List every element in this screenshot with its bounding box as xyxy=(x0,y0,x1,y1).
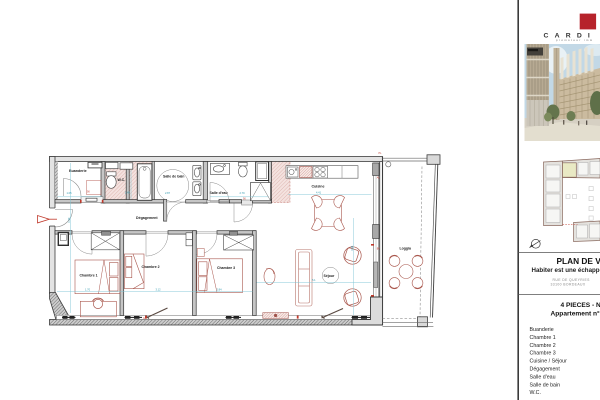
svg-text:1.30: 1.30 xyxy=(67,217,71,223)
svg-text:W.C.: W.C. xyxy=(530,390,541,396)
svg-text:Salle d'eau: Salle d'eau xyxy=(530,374,556,380)
svg-text:2.87: 2.87 xyxy=(165,191,171,195)
svg-text:PLAN DE VENTE: PLAN DE VENTE xyxy=(557,256,600,266)
svg-text:Dégagement: Dégagement xyxy=(136,216,158,220)
svg-text:W.C.: W.C. xyxy=(118,178,126,182)
svg-text:Cuisine: Cuisine xyxy=(312,185,325,189)
svg-text:RUE DE QUEYRIES: RUE DE QUEYRIES xyxy=(553,278,591,282)
svg-text:2.79: 2.79 xyxy=(240,191,246,195)
svg-text:Dégagement: Dégagement xyxy=(530,367,561,373)
svg-text:33100 BORDEAUX: 33100 BORDEAUX xyxy=(551,283,586,287)
svg-text:Chambre 1: Chambre 1 xyxy=(80,274,98,278)
svg-text:promoteur imm: promoteur imm xyxy=(556,38,594,42)
svg-text:2.84: 2.84 xyxy=(217,288,223,292)
svg-text:Buanderie: Buanderie xyxy=(530,327,554,333)
svg-text:4.41: 4.41 xyxy=(316,191,322,195)
svg-text:Séjour: Séjour xyxy=(324,274,336,278)
svg-text:Chambre 1: Chambre 1 xyxy=(530,335,556,341)
svg-text:Loggia: Loggia xyxy=(400,247,412,251)
svg-text:Salle de bain: Salle de bain xyxy=(163,175,184,179)
svg-text:Chambre 3: Chambre 3 xyxy=(530,351,556,357)
svg-text:3.94: 3.94 xyxy=(350,245,354,251)
svg-text:5.1: 5.1 xyxy=(312,278,316,282)
svg-text:Buanderie: Buanderie xyxy=(69,169,87,173)
svg-text:Cuisine / Séjour: Cuisine / Séjour xyxy=(530,359,568,365)
svg-text:Salle d'eau: Salle d'eau xyxy=(210,191,228,195)
svg-text:3.12: 3.12 xyxy=(156,288,162,292)
svg-text:1.70: 1.70 xyxy=(85,288,91,292)
svg-text:Appartement n°: Appartement n° xyxy=(551,309,600,317)
svg-text:2.45: 2.45 xyxy=(125,191,131,195)
svg-text:Habiter est une échappée: Habiter est une échappée xyxy=(532,267,600,274)
svg-text:GF: GF xyxy=(143,317,147,320)
svg-text:Chambre 2: Chambre 2 xyxy=(530,343,556,349)
svg-text:Chambre 3: Chambre 3 xyxy=(217,266,235,270)
svg-text:BV: BV xyxy=(377,248,381,251)
svg-text:4 PIECES - N°1: 4 PIECES - N°1 xyxy=(561,301,600,309)
svg-text:Salle de bain: Salle de bain xyxy=(530,382,561,388)
svg-text:1.05: 1.05 xyxy=(67,191,73,195)
